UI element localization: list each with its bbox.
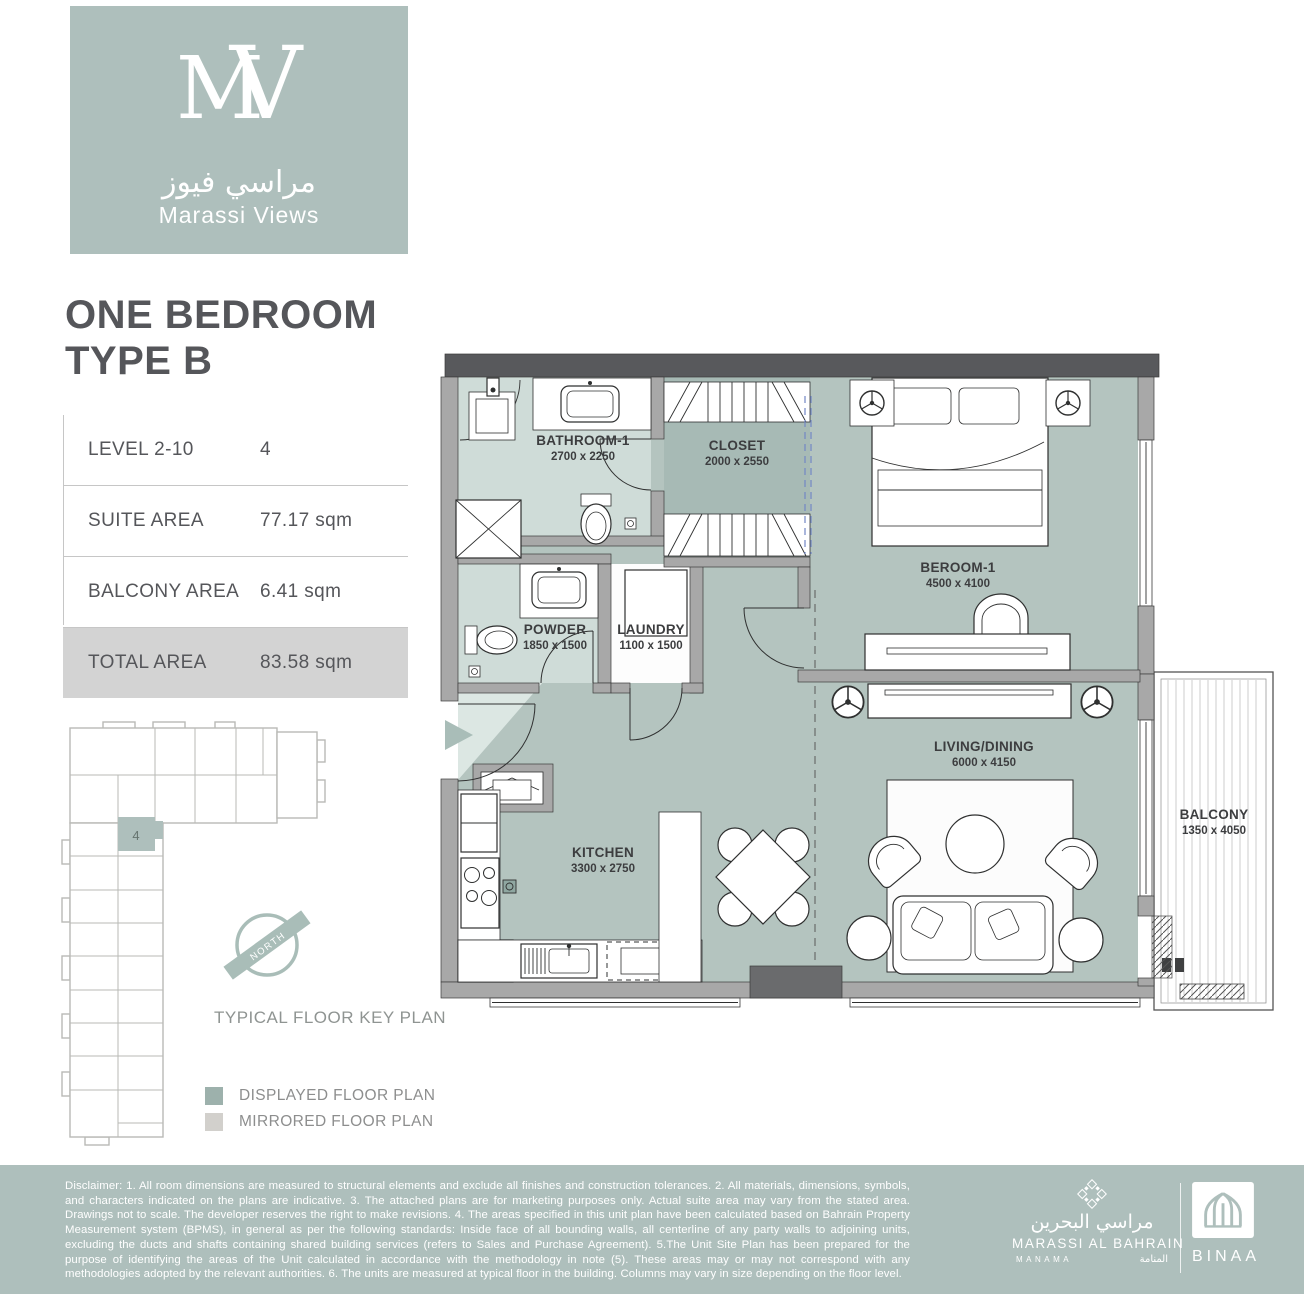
- spec-label: TOTAL AREA: [63, 652, 260, 674]
- room-label: BATHROOM-1: [536, 433, 630, 448]
- room-label: BALCONY: [1180, 807, 1249, 822]
- key-plan-legend: DISPLAYED FLOOR PLAN MIRRORED FLOOR PLAN: [205, 1087, 435, 1139]
- floor-plan: BATHROOM-1 2700 x 2250 CLOSET 2000 x 255…: [435, 338, 1295, 1018]
- brand-name-arabic: مراسي فيوز: [70, 165, 408, 200]
- spec-row-suite-area: SUITE AREA 77.17 sqm: [63, 485, 408, 556]
- room-dimension: 1850 x 1500: [523, 640, 587, 652]
- key-plan-unit-number: 4: [132, 828, 139, 843]
- diamond-flower-icon: [1077, 1179, 1107, 1209]
- plant-icon: [832, 686, 863, 717]
- side-table-icon: [1059, 918, 1103, 962]
- legend-label: MIRRORED FLOOR PLAN: [239, 1113, 434, 1131]
- spec-value: 83.58 sqm: [260, 652, 352, 674]
- binaa-logo: BINAA: [1192, 1182, 1254, 1266]
- floorplan-brochure-page: MV مراسي فيوز Marassi Views ONE BEDROOM …: [0, 0, 1304, 1294]
- spec-row-total-area: TOTAL AREA 83.58 sqm: [63, 627, 408, 698]
- room-dimension: 4500 x 4100: [926, 578, 990, 590]
- room-dimension: 1350 x 4050: [1182, 825, 1246, 837]
- mirrored-swatch-icon: [205, 1113, 223, 1131]
- room-label: BEROOM-1: [920, 560, 995, 575]
- room-dimension: 3300 x 2750: [571, 863, 635, 875]
- spec-value: 4: [260, 439, 271, 461]
- room-dimension: 2700 x 2250: [551, 451, 615, 463]
- spec-label: SUITE AREA: [63, 510, 260, 532]
- room-dimension: 2000 x 2550: [705, 456, 769, 468]
- dining-table-icon: [716, 828, 810, 926]
- room-label: POWDER: [524, 622, 587, 637]
- marassi-english-name: MARASSI AL BAHRAIN: [1012, 1236, 1172, 1251]
- binaa-arch-icon: [1192, 1182, 1254, 1238]
- room-label: CLOSET: [709, 438, 766, 453]
- footer: Disclaimer: 1. All room dimensions are m…: [0, 1165, 1304, 1294]
- spec-value: 77.17 sqm: [260, 510, 352, 532]
- north-indicator-icon: NORTH: [223, 910, 310, 979]
- footer-divider: [1180, 1183, 1181, 1273]
- title-line-1: ONE BEDROOM: [65, 292, 377, 338]
- coffee-table-icon: [946, 815, 1004, 873]
- spec-row-balcony-area: BALCONY AREA 6.41 sqm: [63, 556, 408, 627]
- room-label: KITCHEN: [572, 845, 634, 860]
- marassi-city-row: MANAMA المنامة: [1012, 1254, 1172, 1265]
- spec-label: BALCONY AREA: [63, 581, 260, 603]
- binaa-name: BINAA: [1192, 1248, 1254, 1266]
- legend-item-displayed: DISPLAYED FLOOR PLAN: [205, 1087, 435, 1105]
- room-dimension: 6000 x 4150: [952, 757, 1016, 769]
- room-label: LIVING/DINING: [934, 739, 1034, 754]
- tv-console-icon: [832, 684, 1112, 718]
- city-english: MANAMA: [1016, 1255, 1072, 1264]
- city-arabic: المنامة: [1140, 1254, 1168, 1265]
- displayed-swatch-icon: [205, 1087, 223, 1105]
- brand-name-english: Marassi Views: [70, 202, 408, 229]
- disclaimer-text: Disclaimer: 1. All room dimensions are m…: [65, 1179, 910, 1282]
- page-title: ONE BEDROOM TYPE B: [65, 292, 377, 384]
- unit-spec-table: LEVEL 2-10 4 SUITE AREA 77.17 sqm BALCON…: [63, 415, 408, 698]
- monogram-v: V: [230, 25, 302, 142]
- side-table-icon: [847, 916, 891, 960]
- plant-icon: [1081, 686, 1112, 717]
- key-plan-caption: TYPICAL FLOOR KEY PLAN: [214, 1008, 446, 1028]
- spec-row-level: LEVEL 2-10 4: [63, 415, 408, 485]
- legend-item-mirrored: MIRRORED FLOOR PLAN: [205, 1113, 435, 1131]
- room-dimension: 1100 x 1500: [619, 640, 682, 652]
- bed-icon: [872, 378, 1048, 546]
- marassi-al-bahrain-logo: مراسي البحرين MARASSI AL BAHRAIN MANAMA …: [1012, 1179, 1172, 1265]
- brand-logo-box: MV مراسي فيوز Marassi Views: [70, 6, 408, 254]
- spec-label: LEVEL 2-10: [63, 439, 260, 461]
- spec-value: 6.41 sqm: [260, 581, 341, 603]
- legend-label: DISPLAYED FLOOR PLAN: [239, 1087, 435, 1105]
- room-label: LAUNDRY: [617, 622, 685, 637]
- mv-monogram-icon: MV: [70, 34, 408, 163]
- title-line-2: TYPE B: [65, 338, 377, 384]
- marassi-arabic-name: مراسي البحرين: [1012, 1211, 1172, 1233]
